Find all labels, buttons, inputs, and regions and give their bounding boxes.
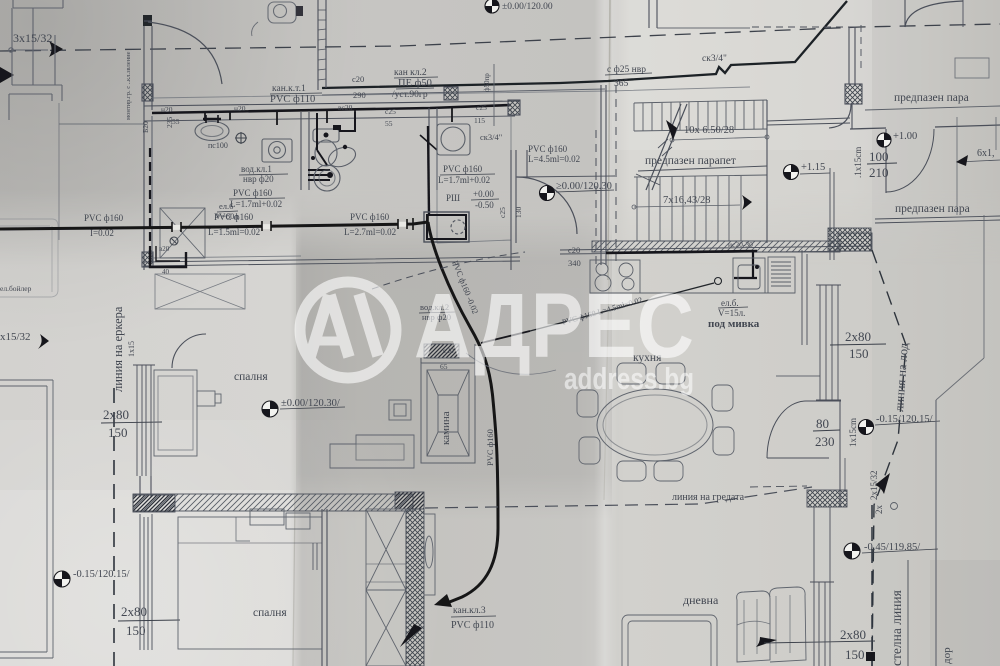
svg-text:вс20: вс20 (338, 103, 353, 112)
svg-text:ск3/4": ск3/4" (702, 54, 727, 64)
svg-text:PVC ф110: PVC ф110 (451, 620, 494, 631)
svg-text:с25: с25 (385, 107, 396, 116)
svg-text:ел.бойлер: ел.бойлер (0, 284, 32, 293)
svg-text:дор: дор (941, 647, 953, 664)
svg-text:/уст.90гр: /уст.90гр (392, 90, 428, 100)
svg-text:PVC ф160: PVC ф160 (528, 144, 568, 154)
svg-text:2x15/32: 2x15/32 (869, 470, 879, 500)
svg-text:2x80: 2x80 (121, 604, 147, 619)
svg-text:PVC ф160: PVC ф160 (350, 212, 390, 222)
svg-text:ел.б.: ел.б. (721, 298, 739, 308)
svg-text:2x80: 2x80 (103, 407, 129, 422)
svg-text:предпазен парапет: предпазен парапет (645, 155, 736, 167)
svg-text:150: 150 (849, 346, 869, 361)
svg-text:линия на еркера: линия на еркера (111, 306, 125, 392)
svg-text:1x15: 1x15 (127, 341, 136, 357)
svg-text:210: 210 (869, 165, 889, 180)
svg-text:РШ: РШ (446, 193, 460, 203)
svg-text:80: 80 (816, 416, 829, 431)
svg-text:10x 6.50/28: 10x 6.50/28 (684, 125, 734, 136)
svg-text:L=2.7ml=0.02: L=2.7ml=0.02 (344, 227, 396, 237)
svg-text:с25: с25 (498, 207, 507, 218)
svg-text:камина: камина (440, 411, 452, 445)
svg-text:235: 235 (165, 117, 174, 129)
svg-text:V=15л.: V=15л. (718, 308, 745, 318)
svg-text:кан.кл.3: кан.кл.3 (453, 606, 486, 616)
svg-text:PVC ф160: PVC ф160 (485, 429, 495, 466)
svg-text:I=0.02: I=0.02 (90, 228, 114, 238)
svg-text:ф50пр: ф50пр (483, 73, 491, 92)
svg-text:PVC ф160: PVC ф160 (84, 213, 124, 223)
svg-text:кан.к.т.1: кан.к.т.1 (272, 84, 306, 94)
svg-text:2x80: 2x80 (840, 627, 866, 642)
svg-text:с20: с20 (568, 245, 580, 255)
svg-text:вод.кл.1: вод.кл.1 (241, 164, 272, 174)
svg-text:спалня: спалня (234, 371, 268, 383)
svg-text:3x15/32: 3x15/32 (13, 31, 52, 45)
svg-text:н20: н20 (234, 104, 246, 113)
svg-text:ск3/4": ск3/4" (480, 132, 502, 142)
svg-text:2x: 2x (874, 505, 884, 515)
svg-text:PVC ф110: PVC ф110 (270, 94, 315, 105)
svg-text:Б20: Б20 (141, 121, 150, 133)
svg-text:н20: н20 (161, 105, 173, 114)
svg-text:address.bg: address.bg (564, 361, 694, 396)
svg-text:150: 150 (126, 623, 146, 638)
svg-text:100: 100 (869, 149, 889, 164)
svg-text:150: 150 (108, 425, 128, 440)
svg-text:+1.00: +1.00 (893, 131, 917, 142)
svg-text:6x1,: 6x1, (977, 148, 995, 159)
svg-text:пс100: пс100 (208, 141, 228, 150)
svg-text:1x15cm: 1x15cm (848, 418, 858, 447)
svg-text:кан кл.2: кан кл.2 (394, 68, 427, 78)
svg-text:стелна линия: стелна линия (889, 590, 904, 666)
svg-text:ПЕ ф50: ПЕ ф50 (398, 78, 432, 89)
svg-text:-0.15/120.15/: -0.15/120.15/ (73, 569, 130, 580)
svg-text:40: 40 (162, 268, 170, 276)
svg-text:в20: в20 (159, 245, 170, 253)
svg-text:.1x15cm: .1x15cm (853, 147, 863, 178)
svg-text:PVC ф160: PVC ф160 (443, 164, 483, 174)
svg-text:спалня: спалня (253, 607, 287, 619)
svg-text:дневна: дневна (683, 593, 719, 607)
svg-text:115: 115 (474, 116, 485, 125)
svg-text:-0.50: -0.50 (475, 200, 494, 210)
svg-text:нвр ф20: нвр ф20 (243, 174, 274, 184)
svg-text:7x16,43/28: 7x16,43/28 (663, 195, 711, 206)
svg-text:x15/32: x15/32 (0, 331, 31, 343)
svg-text:+1.15: +1.15 (801, 162, 825, 173)
svg-text:под мивка: под мивка (708, 318, 760, 330)
svg-text:±0.00/120.00: ±0.00/120.00 (502, 2, 553, 12)
svg-text:340: 340 (568, 258, 581, 268)
svg-text:290: 290 (353, 90, 366, 100)
svg-text:монтир.гр. с ..кл.звление: монтир.гр. с ..кл.звление (125, 51, 132, 120)
svg-text:150: 150 (845, 647, 865, 662)
svg-text:с20: с20 (352, 74, 364, 84)
svg-text:2x80: 2x80 (845, 329, 871, 344)
svg-text:PVC ф160: PVC ф160 (233, 188, 273, 198)
svg-text:с25: с25 (476, 103, 487, 112)
svg-text:55: 55 (385, 119, 393, 128)
svg-text:PVC ф160: PVC ф160 (214, 212, 254, 222)
svg-text:L=1.7ml+0.02: L=1.7ml+0.02 (438, 175, 490, 185)
svg-text:ел.6: ел.6 (219, 201, 233, 211)
svg-text:+0.00: +0.00 (473, 189, 494, 199)
svg-text:L=4.5ml=0.02: L=4.5ml=0.02 (528, 154, 580, 164)
svg-text:L=1.7ml+0.02: L=1.7ml+0.02 (230, 199, 282, 209)
svg-text:230: 230 (815, 434, 835, 449)
svg-text:130: 130 (514, 207, 523, 219)
svg-text:предпазен пара: предпазен пара (895, 203, 970, 215)
svg-text:предпазен пара: предпазен пара (894, 92, 969, 104)
svg-text:линия на гредата: линия на гредата (672, 492, 745, 503)
svg-text:L=1.5ml=0.02: L=1.5ml=0.02 (208, 227, 260, 237)
